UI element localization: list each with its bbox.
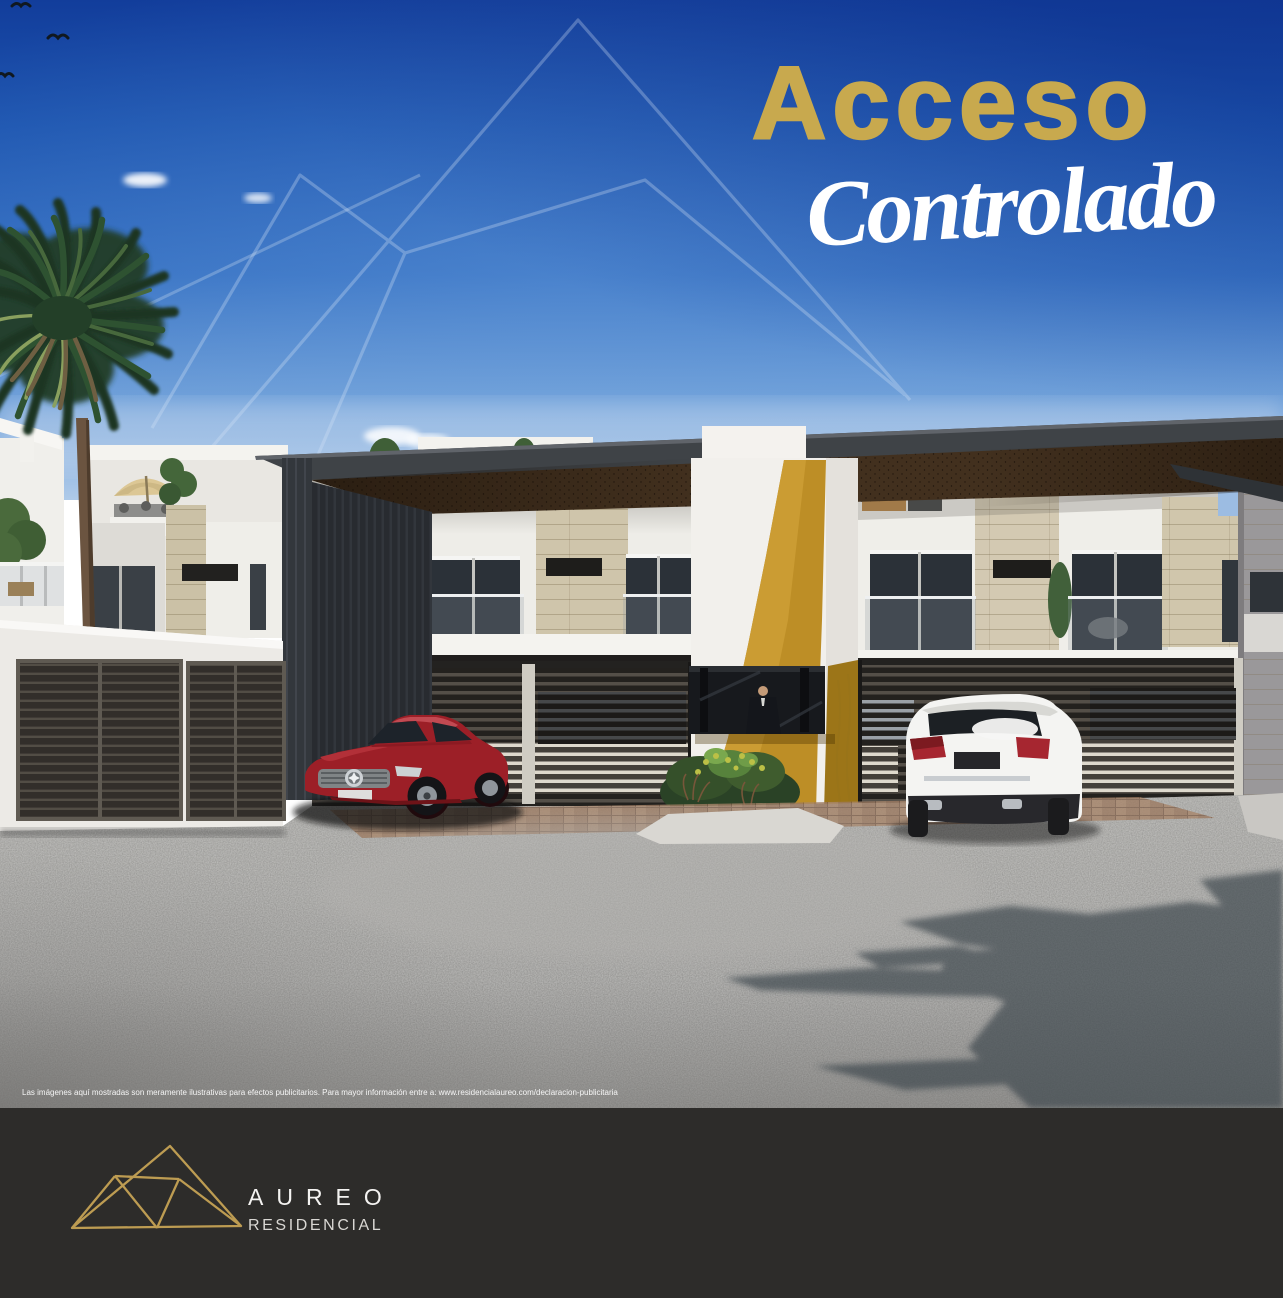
svg-text:Acceso: Acceso <box>752 45 1154 160</box>
svg-text:AUREO: AUREO <box>248 1184 395 1210</box>
svg-text:Controlado: Controlado <box>804 142 1218 267</box>
svg-text:Las imágenes aquí mostradas so: Las imágenes aquí mostradas son merament… <box>22 1088 618 1097</box>
svg-text:RESIDENCIAL: RESIDENCIAL <box>248 1217 383 1234</box>
